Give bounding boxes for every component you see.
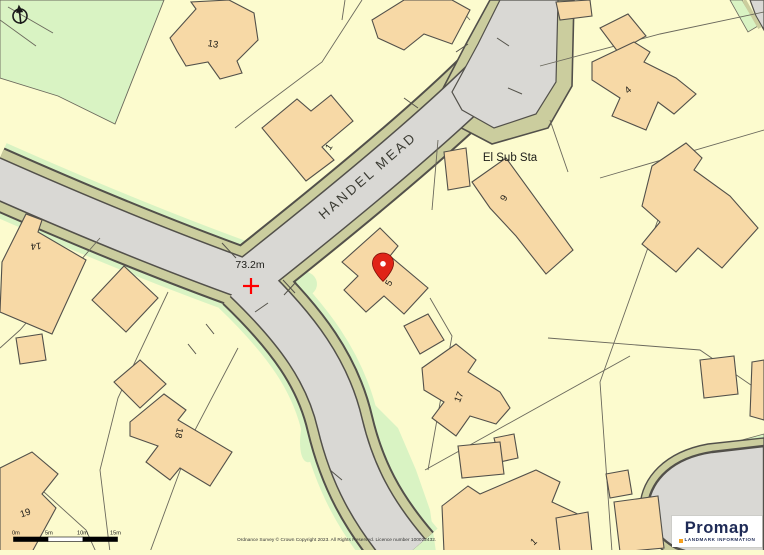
label-building-14: 14 — [30, 239, 42, 251]
promap-logo-name: Promap — [685, 520, 749, 537]
building-bottom-right-a — [606, 470, 632, 498]
building-right-edge — [750, 360, 764, 420]
building-bottom-right-b — [614, 496, 664, 550]
building-17-outbuilding-b — [458, 442, 504, 478]
scale-label-15: 15m — [110, 531, 121, 537]
building-bottom-right-c — [556, 512, 592, 550]
map-viewport[interactable]: 13 1 4 14 9 5 17 18 19 1 HANDEL MEAD El … — [0, 0, 764, 550]
scale-label-5: 5m — [45, 531, 53, 537]
promap-logo-accent-square — [679, 539, 683, 543]
label-building-18: 18 — [172, 427, 185, 440]
building-top-right-a — [556, 0, 592, 20]
copyright-text: Ordnance Survey © Crown Copyright 2023. … — [237, 536, 436, 543]
building-small-square — [16, 334, 46, 364]
building-right-small — [700, 356, 738, 398]
promap-logo-tagline: LANDMARK INFORMATION — [685, 538, 756, 543]
promap-logo: Promap LANDMARK INFORMATION — [672, 516, 762, 547]
substation-label: El Sub Sta — [483, 152, 538, 164]
label-building-13: 13 — [207, 38, 219, 51]
map-canvas[interactable]: 13 1 4 14 9 5 17 18 19 1 HANDEL MEAD El … — [0, 0, 764, 550]
scale-label-10: 10m — [77, 531, 88, 537]
scale-label-0: 0m — [12, 531, 20, 537]
building-substation — [444, 148, 470, 190]
spot-height-label: 73.2m — [235, 259, 264, 271]
